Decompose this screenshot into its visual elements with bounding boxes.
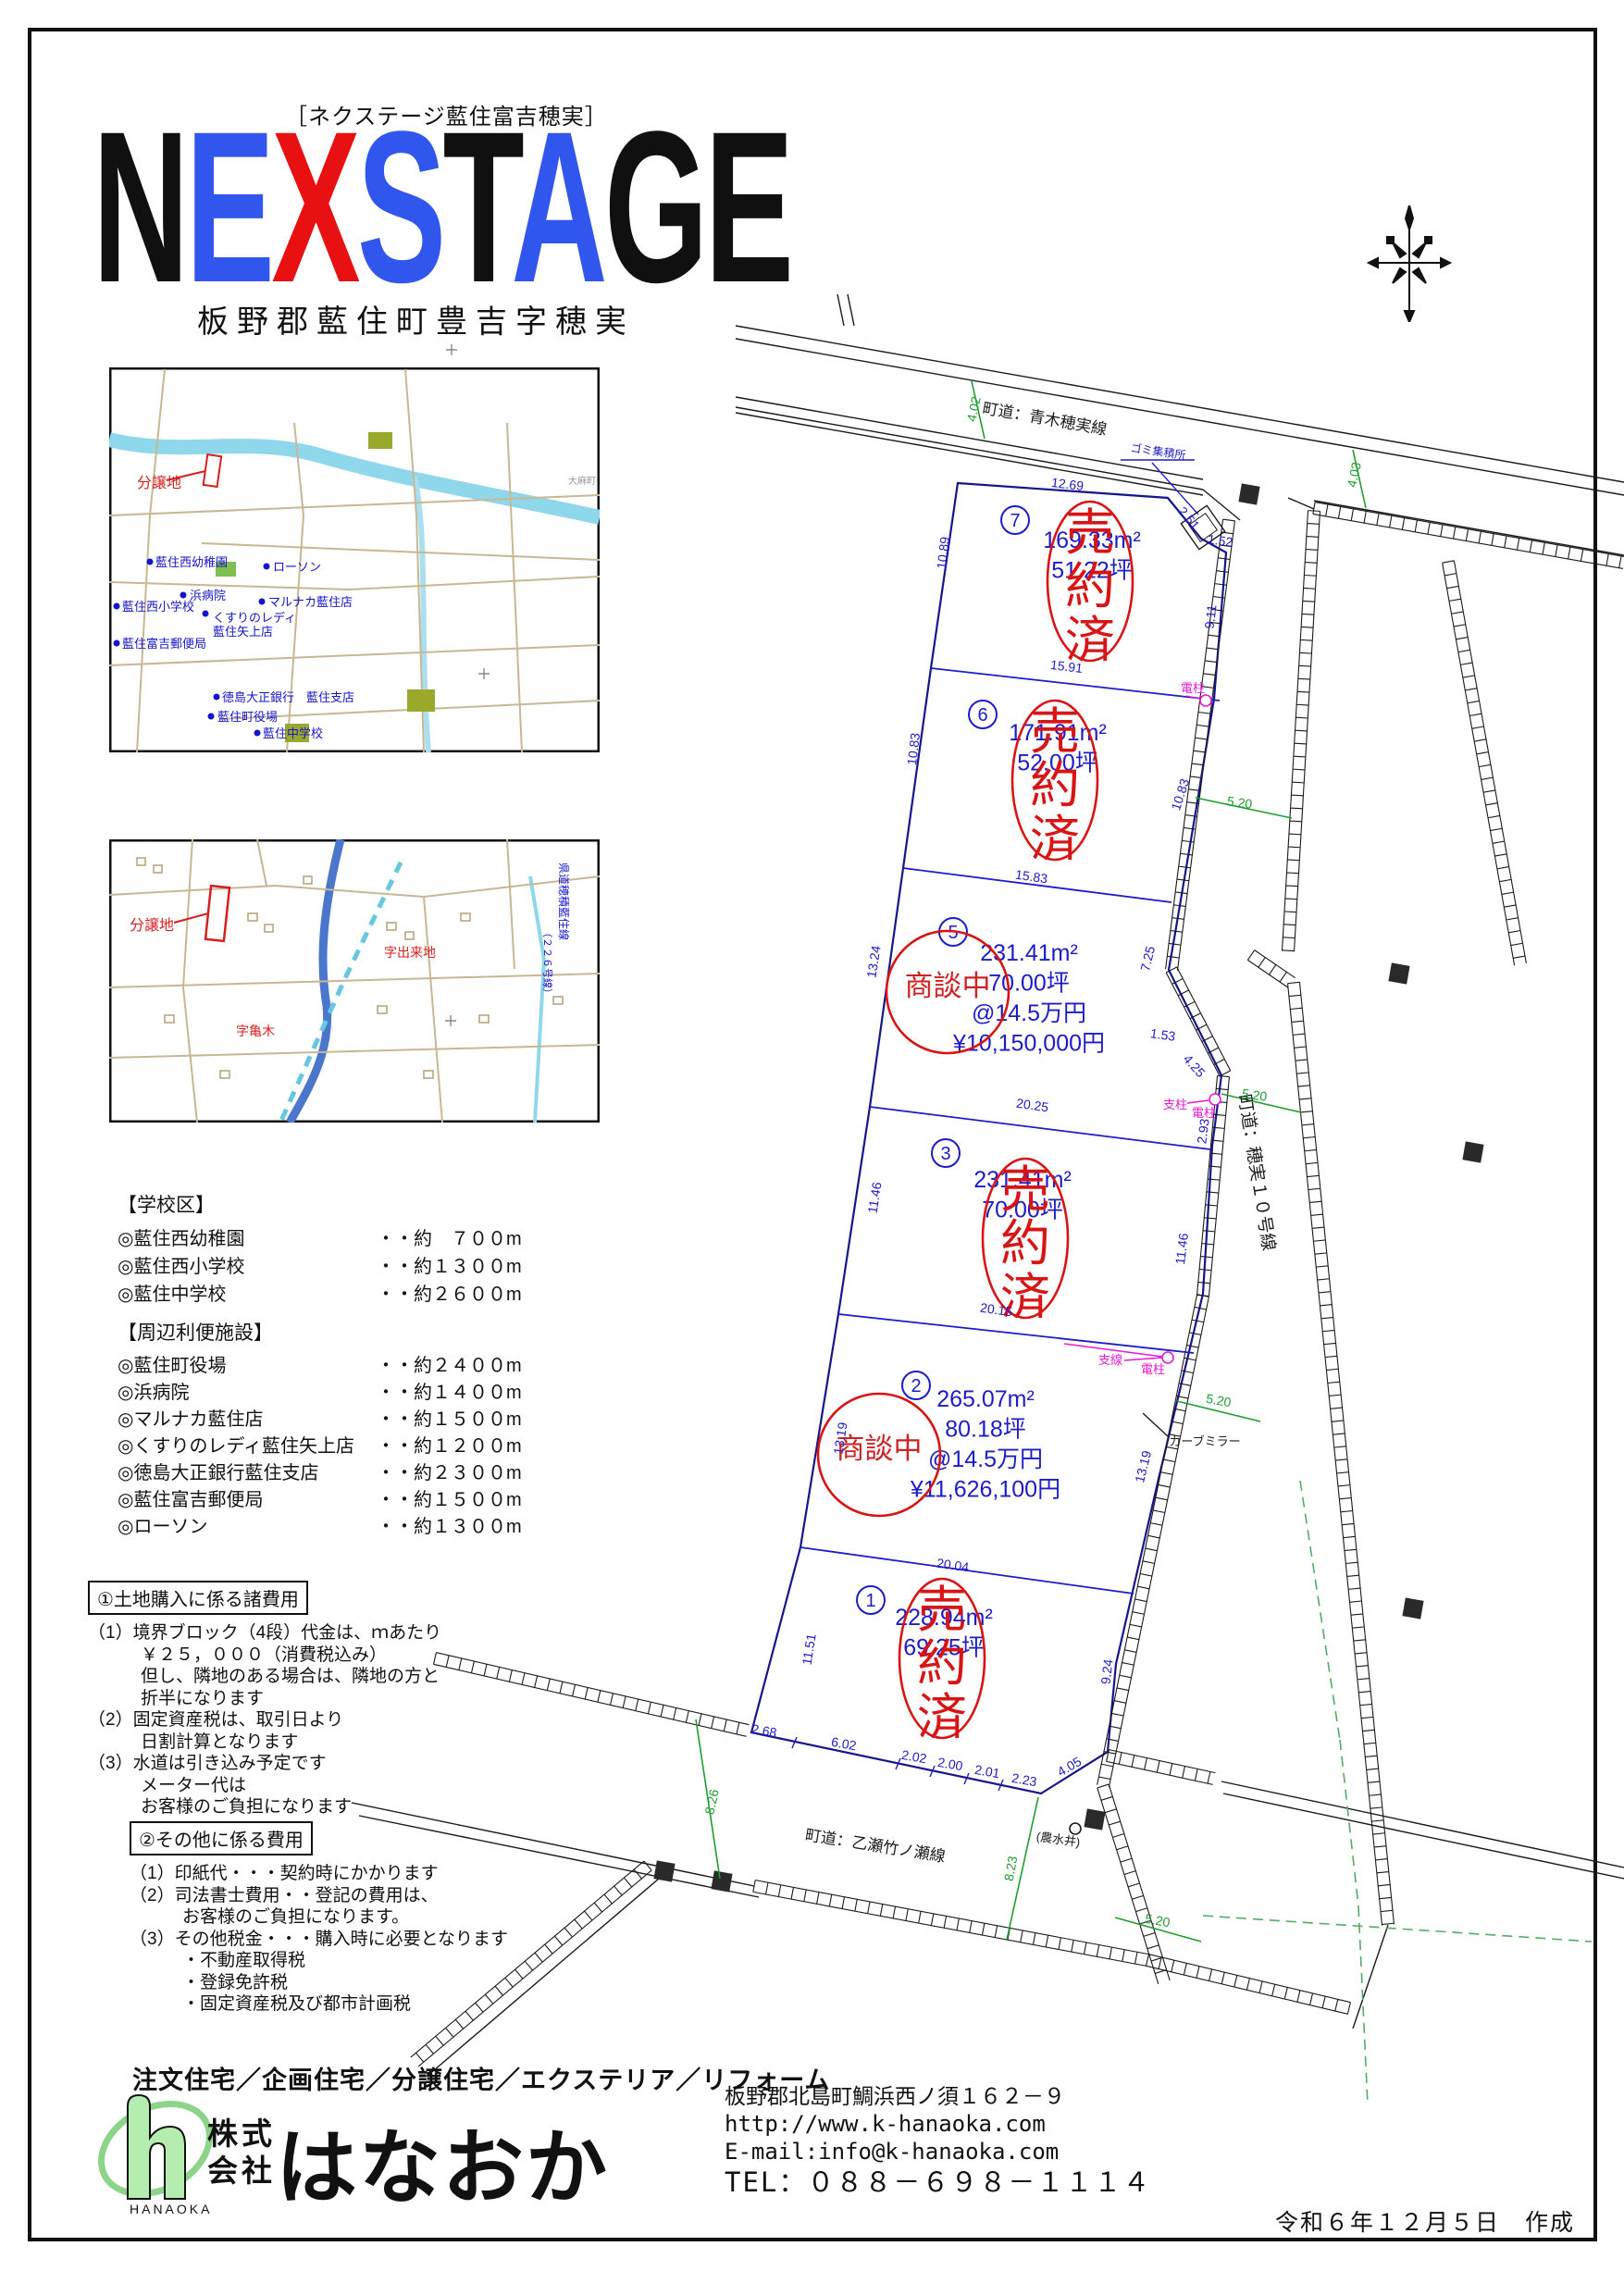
fees1-title: ①土地購入に係る諸費用 — [88, 1581, 308, 1615]
catch-basin — [1388, 962, 1409, 984]
sold-stamp-text: 売 — [1000, 1162, 1050, 1218]
lot-price: ¥10,150,000円 — [952, 1031, 1105, 1057]
hatched-wall — [1097, 1784, 1170, 1984]
dashed-line — [1203, 1916, 1592, 1942]
road-line — [1288, 498, 1314, 509]
plan-label: 9.11 — [1201, 603, 1219, 629]
plan-label: 5.20 — [1205, 1391, 1233, 1410]
hatched-wall — [1288, 982, 1395, 1925]
plan-label: 2.68 — [750, 1721, 778, 1741]
plan-label: 支線 — [1098, 1353, 1122, 1367]
sold-stamp-text: 済 — [917, 1690, 967, 1745]
road-line — [848, 294, 854, 326]
catch-basin — [1084, 1808, 1105, 1830]
lot-area: 265.07m² — [936, 1386, 1035, 1412]
logo-swoosh — [93, 2090, 213, 2212]
list-item: ◎藍住富吉郵便局・・約１５００m — [118, 1487, 636, 1514]
plan-label: 5.20 — [1226, 793, 1253, 812]
facilities-section: 【周辺利便施設】 ◎藍住町役場・・約２４００m ◎浜病院・・約１４００m ◎マル… — [118, 1318, 636, 1541]
plan-label: 電柱 — [1192, 1106, 1216, 1120]
list-item: ◎ローソン・・約１３００m — [118, 1514, 636, 1541]
catch-basin — [1238, 483, 1259, 504]
sold-stamp-text: 約 — [1065, 559, 1115, 614]
land-purchase-costs-section: ①土地購入に係る諸費用 （1）境界ブロック（4段）代金は、ｍあたり ￥２５，００… — [88, 1581, 606, 1818]
hatched-wall — [1247, 950, 1295, 988]
hatched-wall — [1313, 503, 1624, 569]
list-item: ◎藍住町役場・・約２４００m — [118, 1353, 636, 1380]
lot-number: 3 — [940, 1144, 950, 1164]
lot-number: 6 — [977, 705, 987, 726]
plan-label: 町道：穂実１０号線 — [1234, 1093, 1279, 1252]
hatched-wall — [1443, 561, 1527, 965]
list-item: ◎浜病院・・約１４００m — [118, 1380, 636, 1407]
catch-basin — [653, 1860, 675, 1881]
fees2-title: ②その他に係る費用 — [130, 1821, 313, 1855]
date-created: 令和６年１２月５日 作成 — [1275, 2204, 1575, 2238]
plan-label: 8.23 — [1001, 1855, 1021, 1882]
road-line — [1221, 1781, 1624, 1868]
catch-basin — [711, 1870, 732, 1892]
hatched-wall — [1283, 511, 1320, 952]
road-line — [1203, 490, 1240, 520]
logo-h — [128, 2095, 185, 2199]
company-tel: TEL：０８８－６９８－１１１４ — [725, 2166, 1151, 2199]
pole-circle — [1200, 695, 1211, 706]
plan-label: 8.26 — [701, 1788, 721, 1816]
plan-label: ゴミ集積所 — [1130, 441, 1187, 462]
list-item: ◎マルナカ藍住店・・約１５００m — [118, 1407, 636, 1433]
parcel-outline — [751, 483, 1226, 1793]
school-district-section: 【学校区】 ◎藍住西幼稚園・・約 ７００m ◎藍住西小学校・・約１３００m ◎藍… — [118, 1190, 636, 1309]
fees1-lines: （1）境界ブロック（4段）代金は、ｍあたり ￥２５，０００（消費税込み） 但し、… — [88, 1622, 606, 1818]
company-email: E-mail:info@k-hanaoka.com — [725, 2138, 1151, 2166]
lot-price: @14.5万円 — [972, 1000, 1086, 1026]
lot-number: 2 — [911, 1376, 921, 1396]
other-costs-section: ②その他に係る費用 （1）印紙代・・・契約時にかかります（2）司法書士費用・・登… — [130, 1821, 648, 2016]
nego-stamp-text: 商談中 — [905, 970, 991, 1002]
catch-basin — [1402, 1597, 1423, 1619]
plan-label: カーブミラー — [1169, 1434, 1240, 1448]
road-line — [1223, 1793, 1624, 1879]
sold-stamp-text: 売 — [1030, 704, 1080, 760]
lot-number: 1 — [865, 1591, 875, 1611]
survey-cross — [478, 668, 490, 679]
nego-stamp-text: 商談中 — [837, 1433, 923, 1465]
plan-label: 電柱 — [1181, 681, 1205, 695]
sold-stamp-text: 売 — [1065, 505, 1115, 561]
sold-stamp-text: 売 — [917, 1582, 967, 1638]
catch-basin — [1462, 1141, 1483, 1162]
road-line — [736, 339, 1624, 495]
road-line — [837, 294, 844, 326]
dashed-line — [1340, 1740, 1358, 1906]
plan-label: 9.24 — [1097, 1658, 1115, 1685]
sold-stamp-text: 約 — [1000, 1216, 1050, 1272]
sold-stamp-text: 済 — [1030, 812, 1080, 867]
flyer-page: ［ネクステージ藍住富吉穂実］ NEXSTAGE 板野郡藍住町豊吉字穂実 — [0, 0, 1624, 2296]
pole-circle — [1209, 1094, 1221, 1105]
plan-label: 町道：青木穂実線 — [981, 399, 1108, 438]
dashed-line — [1358, 1906, 1368, 2105]
list-item: ◎藍住西幼稚園・・約 ７００m — [118, 1225, 636, 1253]
plan-label: 13.24 — [863, 944, 883, 978]
sold-stamp-text: 約 — [917, 1636, 967, 1692]
hanaoka-logo: HANAOKA — [93, 2090, 213, 2219]
company-name: はなおか — [276, 2103, 609, 2220]
road-line — [1353, 1925, 1388, 2029]
logo-sub-text: HANAOKA — [130, 2202, 212, 2216]
plan-dashed-lines — [1203, 1481, 1592, 2105]
lot-price: @14.5万円 — [928, 1446, 1043, 1472]
hatched-wall — [753, 1880, 1148, 1967]
company-url: http://www.k-hanaoka.com — [725, 2110, 1151, 2138]
company-kk: 株式 会社 — [207, 2116, 276, 2190]
plan-label: 電柱 — [1141, 1362, 1165, 1376]
lot-price: ¥11,626,100円 — [910, 1477, 1060, 1503]
list-item: ◎徳島大正銀行藍住支店・・約２３００m — [118, 1460, 636, 1487]
sold-stamp-text: 約 — [1030, 758, 1080, 813]
road-line — [1314, 501, 1624, 555]
facilities-title: 【周辺利便施設】 — [118, 1318, 636, 1346]
dashed-line — [1300, 1481, 1340, 1740]
hatched-wall — [1107, 1750, 1216, 1785]
lot-tsubo: 80.18坪 — [945, 1417, 1026, 1443]
lot-tsubo: 70.00坪 — [988, 971, 1070, 997]
hatched-wall — [1146, 1955, 1350, 2015]
fees2-lines: （1）印紙代・・・契約時にかかります（2）司法書士費用・・登記の費用は、 お客様… — [130, 1863, 648, 2016]
pole-circle — [1070, 1823, 1081, 1834]
company-address: 板野郡北島町鯛浜西ノ須１６２－９ — [725, 2082, 1151, 2110]
list-item: ◎くすりのレディ藍住矢上店・・約１２００m — [118, 1433, 636, 1460]
schools-title: 【学校区】 — [118, 1190, 636, 1218]
survey-cross — [445, 1015, 456, 1026]
list-item: ◎藍住中学校・・約２６００m — [118, 1281, 636, 1309]
company-contact: 板野郡北島町鯛浜西ノ須１６２－９ http://www.k-hanaoka.co… — [725, 2082, 1151, 2199]
plan-label: 町道：乙瀬竹ノ瀬線 — [804, 1826, 947, 1866]
list-item: ◎藍住西小学校・・約１３００m — [118, 1253, 636, 1281]
lot-number: 7 — [1010, 511, 1020, 531]
survey-cross — [446, 344, 457, 355]
plan-label: 支柱 — [1163, 1098, 1187, 1111]
parcel-boundary — [751, 483, 1226, 1793]
